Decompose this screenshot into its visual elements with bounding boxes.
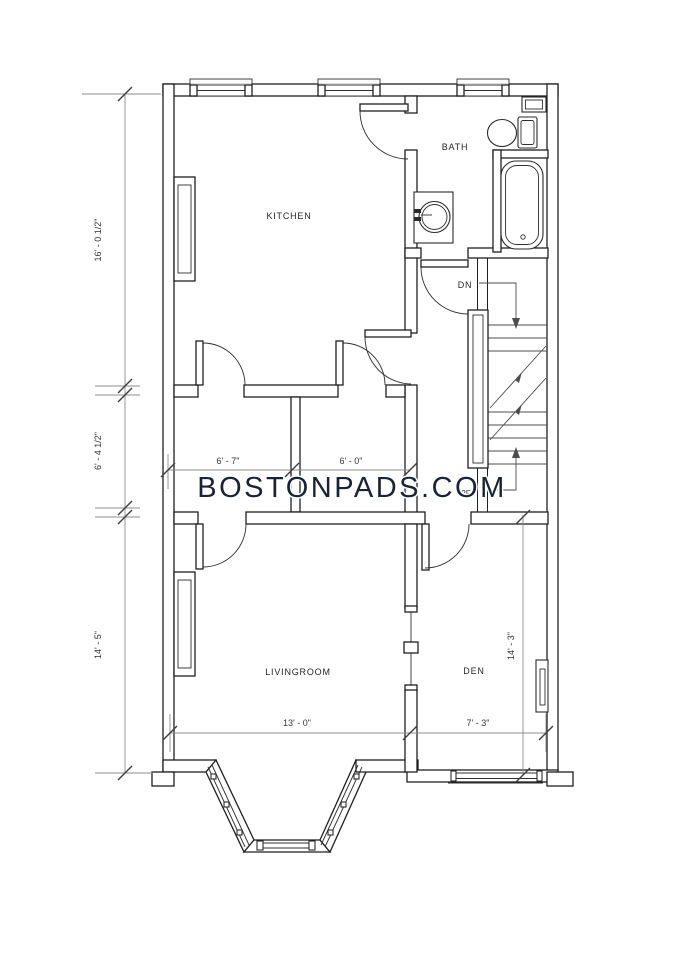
faucet-handle-b bbox=[414, 217, 421, 221]
door-kitchen-hall bbox=[365, 330, 411, 384]
watermark-text: BOSTONPADS.COM bbox=[197, 472, 506, 504]
wall-left bbox=[163, 84, 174, 772]
stair-rail bbox=[468, 310, 488, 468]
wall-lr-den-lower bbox=[405, 690, 417, 772]
floor-plan-drawing: 16' - 0 1/2" 6' - 4 1/2" 14' - 5" 6' - 7… bbox=[0, 0, 700, 968]
toilet bbox=[488, 117, 538, 148]
room-label-livingroom: LIVINGROOM bbox=[265, 667, 331, 677]
stair-break-barb-b bbox=[515, 404, 522, 415]
wall-lr-den-upper bbox=[405, 524, 417, 608]
room-label-kitchen: KITCHEN bbox=[266, 211, 311, 221]
window-kitchen-right bbox=[318, 79, 380, 97]
dim-closet-right: 6' - 0" bbox=[340, 456, 363, 466]
dim-den-height: 14' - 3" bbox=[506, 632, 516, 660]
faucet-handle-a bbox=[414, 209, 421, 213]
wall-niche bbox=[522, 97, 546, 112]
wall-hall-south-a bbox=[174, 512, 198, 524]
stair-break-barb-a bbox=[515, 372, 522, 383]
wall-hall-south-b bbox=[246, 512, 425, 524]
den-wall-recess bbox=[536, 660, 548, 712]
post-cap-a bbox=[405, 606, 417, 612]
dim-livingroom-width: 13' - 0" bbox=[283, 718, 311, 728]
windows bbox=[190, 79, 543, 850]
room-label-bath: BATH bbox=[442, 142, 469, 152]
wall-tub-alcove-left bbox=[493, 150, 501, 252]
dim-left-upper: 16' - 0 1/2" bbox=[93, 219, 103, 262]
wall-right bbox=[547, 84, 558, 782]
chimney-kitchen bbox=[174, 177, 195, 281]
window-bath bbox=[457, 79, 509, 97]
door-den bbox=[422, 524, 469, 570]
room-label-den: DEN bbox=[463, 666, 484, 676]
dim-closet-left: 6' - 7" bbox=[217, 456, 240, 466]
window-kitchen-left bbox=[190, 79, 252, 97]
bathtub bbox=[501, 161, 543, 249]
wall-hall-south-c bbox=[471, 512, 548, 524]
wall-stair-top bbox=[468, 248, 548, 258]
door-closet-left bbox=[196, 341, 245, 385]
pilaster-bottom-left bbox=[152, 772, 174, 786]
door-livingroom bbox=[196, 524, 246, 569]
sink-vanity bbox=[414, 192, 453, 243]
dim-left-middle: 6' - 4 1/2" bbox=[93, 432, 103, 470]
door-closet-right bbox=[336, 341, 385, 385]
bath-fixtures bbox=[414, 97, 546, 249]
door-kitchen-bath bbox=[360, 104, 408, 159]
wall-kitchen-south-a bbox=[174, 385, 198, 397]
pilaster-bottom-right bbox=[547, 772, 573, 786]
wall-kitchen-south-c bbox=[386, 385, 405, 397]
wall-kitchen-south-b bbox=[244, 385, 338, 397]
post-center bbox=[404, 642, 418, 653]
floor-plan-page: 16' - 0 1/2" 6' - 4 1/2" 14' - 5" 6' - 7… bbox=[0, 0, 700, 968]
dim-left-lower: 14' - 5" bbox=[93, 631, 103, 659]
dim-den-width: 7' - 3" bbox=[467, 718, 490, 728]
stairs-down-label: DN bbox=[458, 280, 473, 290]
chimney-livingroom bbox=[174, 572, 195, 676]
wall-bath-south-stub bbox=[405, 248, 421, 258]
